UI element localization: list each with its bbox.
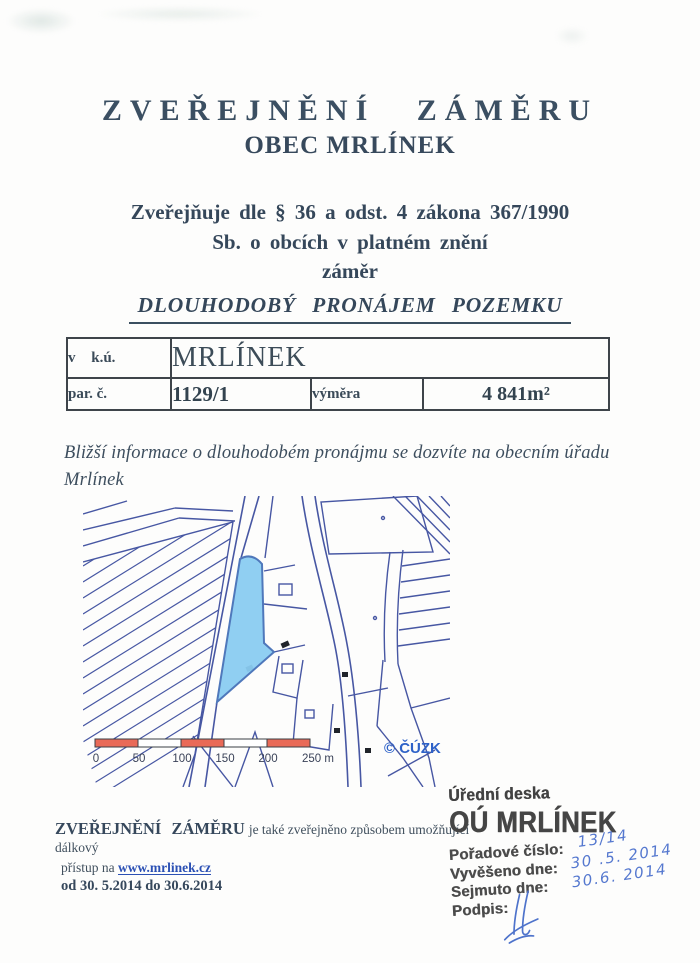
parcel-table: v k.ú. MRLÍNEK par. č. 1129/1 výměra 4 8… bbox=[66, 337, 610, 411]
scan-smudge bbox=[95, 6, 265, 22]
svg-text:0: 0 bbox=[93, 753, 99, 765]
stamp-rows: Pořadové číslo: 13/14 Vyvěšeno dne: 30 .… bbox=[449, 834, 683, 920]
svg-text:50: 50 bbox=[133, 753, 146, 765]
highlighted-parcel bbox=[217, 556, 274, 702]
footer-link-prefix: přístup na bbox=[61, 860, 115, 875]
intent-word: záměr bbox=[0, 259, 700, 284]
scan-smudge bbox=[6, 8, 76, 34]
municipality-title: OBEC MRLÍNEK bbox=[0, 132, 700, 160]
official-board-stamp: Úřední deska OÚ MRLÍNEK Pořadové číslo: … bbox=[448, 780, 681, 920]
parcel-number-value-cell: 1129/1 bbox=[171, 378, 311, 410]
map-copyright: © ČÚZK bbox=[384, 739, 441, 757]
website-link[interactable]: www.mrlinek.cz bbox=[118, 860, 211, 875]
footer-title: ZVEŘEJNĚNÍ ZÁMĚRU bbox=[55, 819, 245, 838]
svg-text:100: 100 bbox=[172, 753, 191, 765]
legal-reference-line: Zveřejňuje dle § 36 a odst. 4 zákona 367… bbox=[0, 200, 700, 225]
scale-bar bbox=[95, 739, 310, 747]
page-title: ZVEŘEJNĚNÍ ZÁMĚRU bbox=[0, 94, 700, 128]
footer-line2: přístup na www.mrlinek.cz bbox=[61, 860, 475, 876]
legal-reference-line2: Sb. o obcích v platném znění bbox=[0, 230, 700, 255]
cadastre-label-cell: v k.ú. bbox=[67, 338, 171, 378]
cadastral-map: 0 50 100 150 200 250 m © ČÚZK bbox=[83, 496, 450, 787]
svg-text:250 m: 250 m bbox=[302, 753, 334, 765]
area-label-cell: výměra bbox=[311, 378, 423, 410]
scale-labels: 0 50 100 150 200 250 m bbox=[93, 753, 334, 765]
footer-dates: od 30. 5.2014 do 30.6.2014 bbox=[61, 878, 475, 895]
intent-heading: DLOUHODOBÝ PRONÁJEM POZEMKU bbox=[0, 293, 700, 324]
info-paragraph: Bližší informace o dlouhodobém pronájmu … bbox=[64, 440, 616, 494]
area-value-cell: 4 841m² bbox=[423, 378, 609, 410]
svg-text:150: 150 bbox=[215, 753, 234, 765]
signature-icon bbox=[493, 889, 558, 947]
svg-text:200: 200 bbox=[258, 753, 277, 765]
scanned-notice-page: ZVEŘEJNĚNÍ ZÁMĚRU OBEC MRLÍNEK Zveřejňuj… bbox=[0, 0, 700, 963]
parcel-number-label-cell: par. č. bbox=[67, 378, 171, 410]
cadastral-map-svg: 0 50 100 150 200 250 m © ČÚZK bbox=[83, 496, 450, 787]
stamp-line1: Úřední deska bbox=[448, 780, 660, 806]
scan-smudge bbox=[555, 26, 589, 46]
footer-line1: ZVEŘEJNĚNÍ ZÁMĚRU je také zveřejněno způ… bbox=[55, 819, 475, 857]
intent-heading-text: DLOUHODOBÝ PRONÁJEM POZEMKU bbox=[129, 293, 570, 324]
footer-block: ZVEŘEJNĚNÍ ZÁMĚRU je také zveřejněno způ… bbox=[55, 819, 475, 895]
cadastre-value-cell: MRLÍNEK bbox=[171, 338, 609, 378]
